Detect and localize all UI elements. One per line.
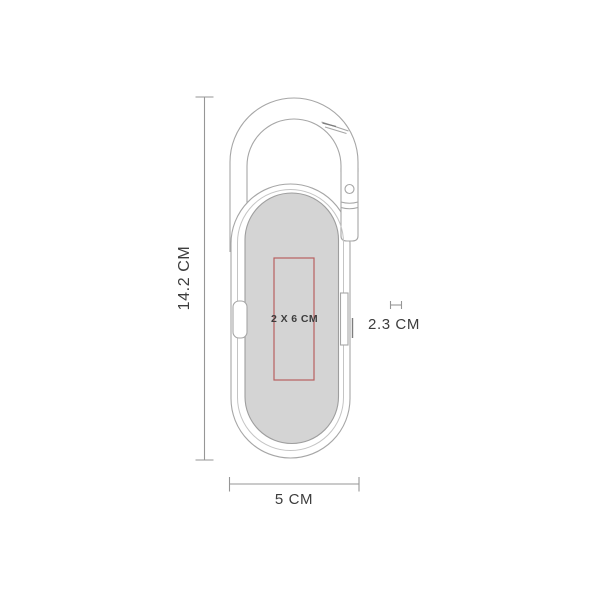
dimension-width-label: 5 CM (275, 491, 313, 508)
side-button (233, 301, 247, 338)
gate-slit-shade (323, 123, 337, 127)
dimension-depth: 2.3 CM (368, 301, 420, 333)
dimension-diagram: 2 X 6 CM 14.2 CM 5 CM 2.3 CM (0, 0, 600, 600)
dimension-depth-label: 2.3 CM (368, 316, 420, 333)
imprint-area-label: 2 X 6 CM (271, 313, 318, 325)
dimension-height-label: 14.2 CM (176, 246, 193, 311)
carabiner-usb-drive-drawing: 2 X 6 CM 14.2 CM 5 CM 2.3 CM (0, 0, 600, 600)
side-slot (341, 293, 349, 345)
dimension-height: 14.2 CM (176, 97, 214, 460)
gate-bar-fill (341, 168, 358, 241)
dimension-width: 5 CM (230, 477, 360, 508)
gate-pivot-hole (345, 185, 354, 194)
